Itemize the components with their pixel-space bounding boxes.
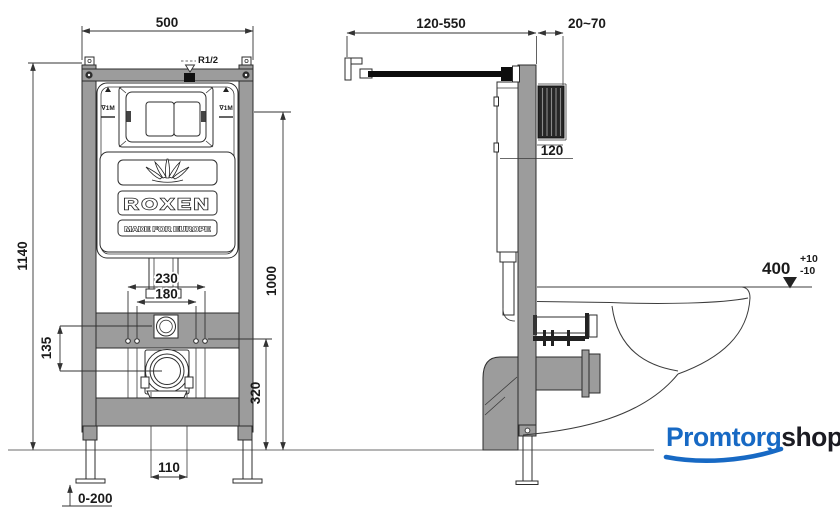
dim-bolt-inner-label: 180 [155, 287, 178, 302]
frame-rail-side [518, 65, 536, 425]
brand-panel: ROXEN MADE FOR EUROPE [100, 152, 235, 252]
frame-top-bar [82, 69, 253, 81]
rim-underline [537, 298, 748, 303]
dim-rod-length-label: 120-550 [416, 16, 466, 31]
tank-downpipe [503, 262, 514, 315]
foot-plate-side [516, 481, 538, 485]
outlet-wing-right [185, 377, 193, 388]
level-mark-right-label: ∇1M [219, 105, 233, 112]
dim-height-label: 1140 [15, 241, 30, 270]
top-bolt-right-center [245, 74, 247, 76]
front-view: R1/2 ∇1M ∇1M [76, 55, 262, 483]
flush-plate-clip-right [201, 111, 206, 122]
outlet-wing-left [141, 377, 149, 388]
bowl-outer-curve [678, 298, 750, 374]
leg-stub-right [238, 426, 252, 440]
bolt-hole [126, 339, 131, 344]
waste-flange-2 [589, 354, 600, 393]
frame-rail-right [239, 65, 253, 432]
rod-bracket [513, 66, 520, 82]
frame-bottom-bar [96, 398, 239, 426]
flush-pipe-cap [533, 315, 537, 335]
water-inlet-port [184, 73, 195, 82]
flush-rod [533, 336, 585, 341]
pipe-clamp-pin [543, 330, 546, 346]
side-dimensions: 120-550 20~70 120 400 +10 -10 [347, 16, 818, 289]
flush-plate-clip-left [127, 111, 132, 122]
flush-pipe-flange [585, 313, 589, 339]
top-bolt-left-center [88, 74, 90, 76]
bowl-inner-curve [612, 306, 678, 371]
leg-screw-side [523, 436, 532, 481]
anchor-plate [345, 58, 351, 80]
watermark-brand-blue: Promtorg [666, 422, 781, 452]
leg-screw-left [86, 440, 95, 479]
rod-clamp [501, 67, 513, 81]
tank-clip [494, 97, 499, 106]
leg-stub-left [83, 426, 97, 440]
brand-name: ROXEN [124, 197, 212, 214]
dim-outlet-pipe-label: 110 [158, 460, 180, 475]
rim-corner [742, 287, 750, 298]
dim-frame-depth-label: 120 [541, 143, 564, 158]
installation-frame-drawing: R1/2 ∇1M ∇1M [0, 0, 840, 525]
dim-wall-gap-label: 20~70 [568, 16, 606, 31]
dim-supply-offset-label: 135 [39, 336, 54, 359]
level-mark-left-label: ∇1M [101, 105, 115, 112]
inlet-label: R1/2 [198, 55, 218, 66]
tank-bottom-step [500, 252, 516, 262]
waste-flange-1 [582, 350, 589, 397]
flush-pipe-collar [589, 315, 597, 337]
brand-tagline: MADE FOR EUROPE [125, 225, 211, 234]
dim-feet-adjust-label: 0-200 [78, 491, 113, 506]
foot-bolt [525, 428, 530, 433]
side-view [345, 36, 812, 485]
outlet-bracket [147, 391, 187, 398]
dim-rim-height-label: 400 [762, 259, 790, 278]
bolt-hole [203, 339, 208, 344]
pipe-clamp-pin [567, 330, 570, 346]
watermark-brand-dark: shop [781, 422, 840, 452]
waste-pipe-side [536, 357, 583, 390]
bolt-hole [194, 339, 199, 344]
frame-rail-left [82, 65, 96, 432]
dim-rim-tol-minus: -10 [800, 265, 815, 277]
dim-panel-height-label: 1000 [264, 266, 279, 296]
flush-plate [126, 92, 206, 142]
leg-screw-right [243, 440, 252, 479]
dim-outlet-height-label: 320 [248, 382, 263, 405]
watermark-text: Promtorgshop [666, 422, 840, 452]
foot-plate-right [233, 479, 262, 483]
foot-plate-left [76, 479, 105, 483]
support-rod [368, 71, 503, 77]
tank-clip [494, 143, 499, 152]
dim-bolt-outer-label: 230 [155, 271, 178, 286]
dim-width-label: 500 [156, 15, 179, 30]
watermark-logo: Promtorgshop [666, 422, 840, 461]
technical-drawing-page: R1/2 ∇1M ∇1M [0, 0, 840, 525]
tank-side [497, 82, 518, 252]
pipe-clamp-pin [551, 330, 554, 346]
bolt-hole [135, 339, 140, 344]
dim-rim-tol-plus: +10 [800, 253, 818, 265]
